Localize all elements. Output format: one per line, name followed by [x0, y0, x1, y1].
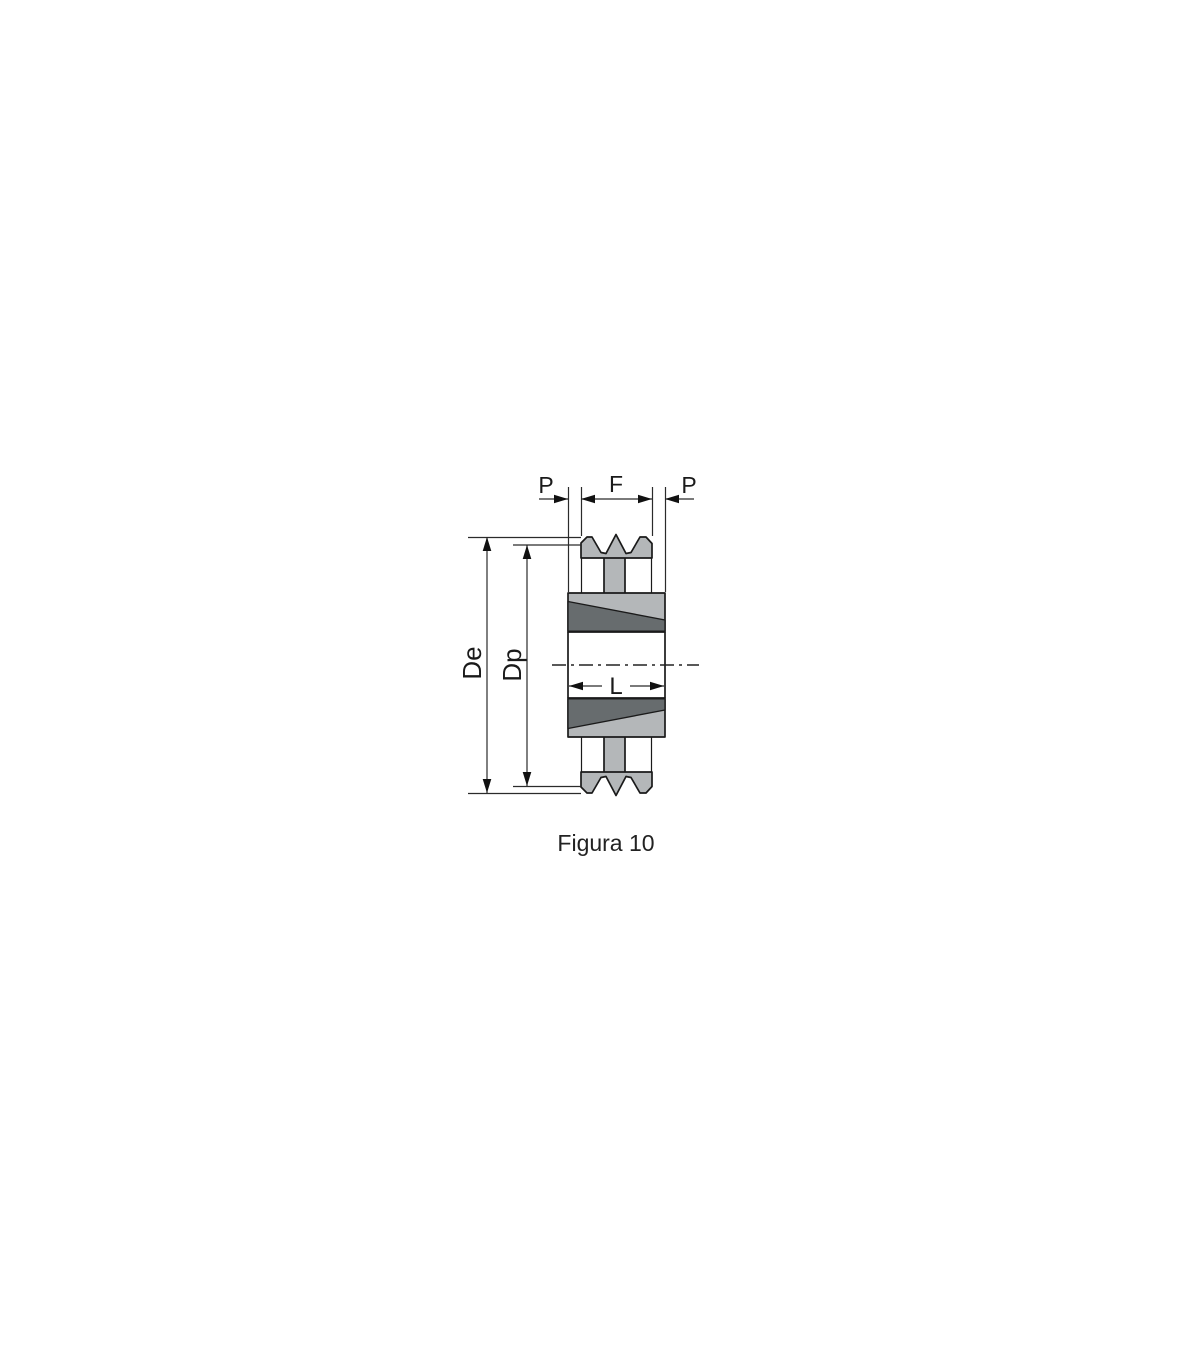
rim-bottom-grooves: [581, 772, 652, 796]
label-p-right: P: [681, 472, 696, 498]
arrow-p-right: [665, 495, 679, 503]
arrow-l-right: [650, 682, 664, 690]
arrow-f-right: [638, 495, 652, 503]
label-f: F: [609, 471, 623, 497]
arrow-dp-top: [523, 545, 532, 559]
arrow-de-top: [483, 537, 492, 551]
figure-caption: Figura 10: [557, 830, 654, 856]
arrow-p-left: [554, 495, 568, 503]
rim-top-grooves: [581, 535, 652, 559]
web-bottom: [604, 736, 625, 774]
arrow-dp-bottom: [523, 772, 532, 786]
arrow-de-bottom: [483, 779, 492, 793]
labels: P F P De Dp L Figura 10: [457, 471, 697, 856]
arrow-f-left: [581, 495, 595, 503]
label-p-left: P: [538, 472, 553, 498]
label-de: De: [457, 646, 487, 679]
web-top: [604, 556, 625, 594]
label-l: L: [609, 673, 622, 700]
pulley-section-figure: P F P De Dp L Figura 10: [0, 0, 1200, 1372]
pulley-drawing: [552, 535, 699, 796]
arrow-l-left: [569, 682, 583, 690]
label-dp: Dp: [497, 648, 527, 681]
